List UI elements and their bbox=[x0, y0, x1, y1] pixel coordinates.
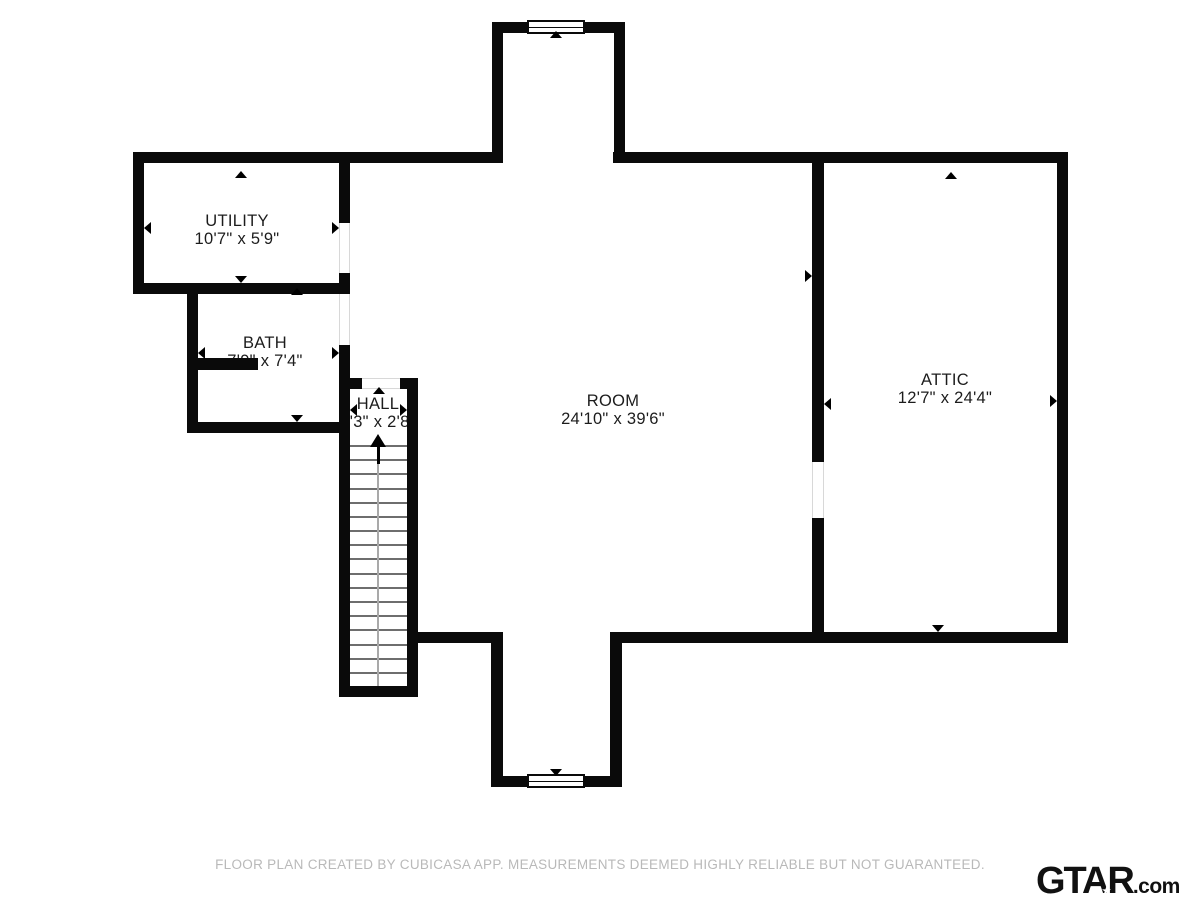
wall-top-right bbox=[613, 152, 1068, 163]
wall-stair-left bbox=[339, 433, 350, 697]
measurement-arrow-attic-top bbox=[945, 172, 957, 179]
measurement-arrow-bath-bottom bbox=[291, 415, 303, 422]
measurement-arrow-utility-bottom bbox=[235, 276, 247, 283]
measurement-arrow-bath-left bbox=[198, 347, 205, 359]
wall-exterior-left bbox=[133, 152, 144, 294]
measurement-arrow-bath-right bbox=[332, 347, 339, 359]
wall-bottom-right bbox=[610, 632, 1068, 643]
wall-bath-stub bbox=[193, 358, 258, 370]
door-opening-bath-a bbox=[339, 293, 340, 345]
wall-bumpout-bottom-right bbox=[610, 632, 622, 787]
wall-stair-bottom bbox=[339, 686, 418, 697]
gtar-logo-suffix: .com bbox=[1133, 875, 1180, 899]
footer-disclaimer: FLOOR PLAN CREATED BY CUBICASA APP. MEAS… bbox=[0, 857, 1200, 872]
measurement-arrow-utility-top bbox=[235, 171, 247, 178]
wall-bumpout-bottom-left bbox=[491, 632, 503, 787]
measurement-arrow-hall-right bbox=[400, 404, 407, 416]
measurement-arrow-attic-left bbox=[824, 398, 831, 410]
room-name: BATH bbox=[185, 335, 345, 353]
wall-top-left bbox=[133, 152, 503, 163]
measurement-arrow-utility-right bbox=[332, 222, 339, 234]
wall-bath-right bbox=[339, 345, 350, 433]
wall-exterior-right bbox=[1057, 152, 1068, 643]
measurement-arrow-attic-right bbox=[1050, 395, 1057, 407]
wall-room-bottom-left bbox=[413, 632, 503, 643]
door-opening-utility-b bbox=[349, 223, 350, 273]
stair-direction-stem bbox=[377, 446, 380, 464]
measurement-arrow-hall-left bbox=[350, 404, 357, 416]
measurement-arrow-room-bottom bbox=[550, 769, 562, 776]
room-name: UTILITY bbox=[147, 213, 327, 231]
door-opening-attic-b bbox=[823, 462, 824, 518]
measurement-arrow-bath-top bbox=[291, 288, 303, 295]
room-label-room: ROOM 24'10" x 39'6" bbox=[523, 393, 703, 428]
wall-bumpout-top-left bbox=[492, 22, 503, 163]
room-label-attic: ATTIC 12'7" x 24'4" bbox=[855, 372, 1035, 407]
wall-bath-bottom bbox=[187, 422, 350, 433]
room-name: HALL bbox=[308, 396, 448, 414]
wall-utility-right-b bbox=[339, 273, 350, 293]
gtar-logo-text: GTAR ★ bbox=[1036, 864, 1133, 898]
door-opening-attic-a bbox=[812, 462, 813, 518]
texas-star-icon: ★ bbox=[1102, 875, 1109, 900]
door-opening-utility-a bbox=[339, 223, 340, 273]
stair-center-line bbox=[377, 445, 379, 686]
measurement-arrow-room-right bbox=[805, 270, 812, 282]
door-opening-bath-b bbox=[349, 293, 350, 345]
door-opening-hall-a bbox=[362, 378, 400, 379]
wall-hall-top-left bbox=[348, 378, 362, 389]
measurement-arrow-utility-left bbox=[144, 222, 151, 234]
wall-stair-right bbox=[407, 378, 418, 697]
wall-utility-bottom bbox=[133, 283, 350, 294]
wall-utility-right-a bbox=[339, 163, 350, 223]
wall-bumpout-top-right bbox=[614, 22, 625, 163]
room-name: ROOM bbox=[523, 393, 703, 411]
window-bottom bbox=[527, 774, 585, 788]
measurement-arrow-attic-bottom bbox=[932, 625, 944, 632]
wall-divider-lower bbox=[812, 518, 824, 632]
gtar-logo: GTAR ★ .com bbox=[1036, 864, 1180, 899]
room-name: ATTIC bbox=[855, 372, 1035, 390]
room-label-utility: UTILITY 10'7" x 5'9" bbox=[147, 213, 327, 248]
room-dimensions: 24'10" x 39'6" bbox=[523, 411, 703, 429]
room-dimensions: 10'7" x 5'9" bbox=[147, 231, 327, 249]
wall-divider-upper bbox=[812, 163, 824, 462]
measurement-arrow-room-top bbox=[550, 31, 562, 38]
floor-plan-canvas: UTILITY 10'7" x 5'9" BATH 7'9" x 7'4" HA… bbox=[0, 0, 1200, 900]
room-dimensions: 12'7" x 24'4" bbox=[855, 390, 1035, 408]
measurement-arrow-hall-top bbox=[373, 387, 385, 394]
